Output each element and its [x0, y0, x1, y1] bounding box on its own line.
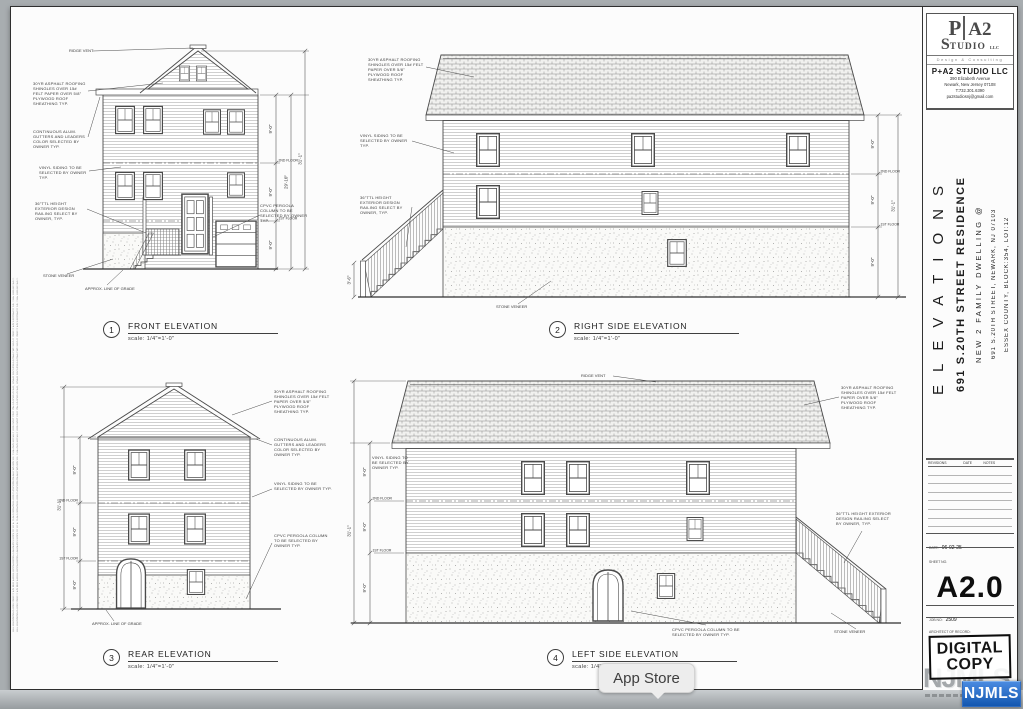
title-block: PA2 STUDIO LLC Design & Consulting P+A2 …	[922, 7, 1017, 691]
note-gutters: CONTINUOUS ALUM. GUTTERS AND LEADERS COL…	[33, 129, 87, 149]
note-gutters: CONTINUOUS ALUM. GUTTERS AND LEADERS COL…	[274, 437, 332, 457]
svg-text:9'-0": 9'-0"	[268, 187, 273, 196]
plate-title: FRONT ELEVATION	[128, 321, 278, 334]
svg-text:9'-0": 9'-0"	[72, 465, 77, 474]
revision-row	[928, 510, 1012, 519]
sheet-number: A2.0	[929, 571, 1011, 605]
plate-scale: scale: 1/4"=1'-0"	[128, 336, 278, 342]
front-elevation-drawing: 9'-0" 9'-0" 9'-0" 29'-10" 31'-1" 2ND FLO…	[33, 37, 333, 305]
svg-text:9'-0": 9'-0"	[870, 257, 875, 266]
svg-text:9'-0": 9'-0"	[268, 124, 273, 133]
firm-logo: PA2 STUDIO LLC Design & Consulting P+A2 …	[926, 13, 1014, 109]
note-railing: 36"TTL HEIGHT EXTERIOR DESIGN RAILING SE…	[360, 195, 410, 215]
note-cpvc: CPVC PERGOLA COLUMN TO BE SELECTED BY OW…	[260, 203, 310, 223]
revisions-col-header: REVISIONS	[928, 461, 963, 465]
svg-text:9'-0": 9'-0"	[870, 139, 875, 148]
edge-copyright-text: ALL DRAWINGS AND WRITTEN MATERIAL APPEAR…	[12, 87, 20, 632]
note-siding: VINYL SIDING TO BE SELECTED BY OWNER TYP…	[274, 481, 332, 491]
app-store-tooltip: App Store	[598, 663, 695, 693]
note-roofing: 30YR ASPHALT ROOFING SHINGLES OVER 15# F…	[368, 57, 424, 82]
date-col-header: DATE	[963, 461, 983, 465]
sheet-title: ELEVATIONS	[930, 116, 947, 452]
svg-text:9'-0": 9'-0"	[362, 467, 367, 476]
revision-row	[928, 501, 1012, 510]
svg-text:1ST FLOOR: 1ST FLOOR	[59, 557, 78, 561]
plate-number: 3	[103, 649, 120, 666]
front-elevation-label: 1 FRONT ELEVATION scale: 1/4"=1'-0"	[103, 321, 278, 342]
right-side-elevation-drawing: 9'-0" 9'-0" 9'-0" 31'-1" 3'-6" 2ND FLOOR…	[346, 49, 921, 313]
svg-text:29'-10": 29'-10"	[284, 175, 289, 189]
bottom-gray-strip	[0, 690, 1023, 709]
svg-text:31'-1": 31'-1"	[347, 525, 352, 537]
project-address: 691 S.20TH STREET, NEWARK, NJ 07103	[991, 116, 997, 452]
svg-text:1ST FLOOR: 1ST FLOOR	[881, 223, 900, 227]
svg-text:2ND FLOOR: 2ND FLOOR	[279, 159, 299, 163]
svg-text:STONE VENEER: STONE VENEER	[834, 629, 865, 634]
project-lot-info: ESSEX COUNTY, BLOCK:354, LOT:12	[1004, 116, 1010, 452]
svg-text:9'-0": 9'-0"	[362, 522, 367, 531]
note-railing: 36"TTL HEIGHT EXTERIOR DESIGN RAILING SE…	[836, 511, 892, 526]
svg-text:STONE VENEER: STONE VENEER	[496, 304, 527, 309]
revision-row	[928, 493, 1012, 502]
njmls-logo-badge: NJMLS	[962, 681, 1021, 707]
revision-row	[928, 467, 1012, 476]
firm-name: P+A2 STUDIO LLC	[927, 64, 1013, 76]
svg-text:APPROX. LINE OF GRADE: APPROX. LINE OF GRADE	[85, 286, 135, 291]
svg-text:1ST FLOOR: 1ST FLOOR	[373, 549, 392, 553]
svg-text:3'-6": 3'-6"	[347, 275, 352, 284]
revision-row	[928, 519, 1012, 528]
drawing-sheet: ALL DRAWINGS AND WRITTEN MATERIAL APPEAR…	[10, 6, 1018, 690]
left-side-elevation-drawing: 9'-0" 9'-0" 9'-0" 31'-1" 2ND FLOOR 1ST F…	[336, 371, 921, 648]
revisions-table: REVISIONS DATE NOTES	[926, 459, 1014, 533]
revision-row	[928, 484, 1012, 493]
svg-text:31'-1": 31'-1"	[298, 153, 303, 165]
note-siding: VINYL SIDING TO BE SELECTED BY OWNER TYP…	[39, 165, 87, 180]
svg-text:RIDGE VENT: RIDGE VENT	[69, 48, 94, 53]
firm-email: pa2studiosnj@gmail.com	[927, 94, 1013, 100]
plate-title: RIGHT SIDE ELEVATION	[574, 321, 739, 334]
job-number-row: JOB NO:2509	[926, 605, 1014, 617]
notes-col-header: NOTES	[983, 461, 1012, 465]
screenshot-root: ALL DRAWINGS AND WRITTEN MATERIAL APPEAR…	[0, 0, 1023, 709]
right-side-elevation-label: 2 RIGHT SIDE ELEVATION scale: 1/4"=1'-0"	[549, 321, 739, 342]
note-roofing: 30YR ASPHALT ROOFING SHINGLES OVER 15# F…	[33, 81, 87, 106]
firm-tagline: Design & Consulting	[927, 57, 1013, 62]
plate-scale: scale: 1/4"=1'-0"	[128, 664, 278, 670]
rear-elevation-drawing: 9'-0" 9'-0" 9'-0" 31'-1" 2ND FLOOR 1ST F…	[36, 375, 336, 649]
plate-scale: scale: 1/4"=1'-0"	[574, 336, 739, 342]
note-siding: VINYL SIDING TO BE SELECTED BY OWNER TYP…	[372, 455, 414, 470]
revision-row	[928, 476, 1012, 485]
svg-text:RIDGE VENT: RIDGE VENT	[581, 373, 606, 378]
note-siding: VINYL SIDING TO BE SELECTED BY OWNER TYP…	[360, 133, 410, 148]
tooltip-tail	[651, 692, 665, 699]
svg-text:APPROX. LINE OF GRADE: APPROX. LINE OF GRADE	[92, 621, 142, 626]
svg-text:2ND FLOOR: 2ND FLOOR	[373, 497, 393, 501]
svg-text:9'-0": 9'-0"	[72, 580, 77, 589]
svg-text:31'-1": 31'-1"	[891, 200, 896, 212]
date-row: DATE:06-02-25	[926, 533, 1014, 547]
svg-text:2ND FLOOR: 2ND FLOOR	[881, 170, 901, 174]
svg-text:9'-0": 9'-0"	[362, 583, 367, 592]
project-identification: ELEVATIONS 691 S.20TH STREET RESIDENCE N…	[926, 109, 1014, 459]
note-roofing: 30YR ASPHALT ROOFING SHINGLES OVER 15# F…	[274, 389, 332, 414]
note-railing: 36"TTL HEIGHT EXTERIOR DESIGN RAILING SE…	[35, 201, 85, 221]
project-title: 691 S.20TH STREET RESIDENCE	[955, 116, 967, 452]
svg-text:9'-0": 9'-0"	[268, 240, 273, 249]
rear-elevation-label: 3 REAR ELEVATION scale: 1/4"=1'-0"	[103, 649, 278, 670]
note-roofing: 30YR ASPHALT ROOFING SHINGLES OVER 15# F…	[841, 385, 899, 410]
plate-number: 2	[549, 321, 566, 338]
svg-text:2ND FLOOR: 2ND FLOOR	[59, 499, 79, 503]
tooltip-label: App Store	[613, 670, 680, 687]
svg-text:9'-0": 9'-0"	[870, 195, 875, 204]
project-subtitle: NEW 2 FAMILY DWELLING @	[974, 116, 983, 452]
sheet-number-box: SHEET NO. A2.0	[926, 547, 1014, 605]
architect-row: ARCHITECT OF RECORD:	[926, 617, 1014, 633]
svg-text:9'-0": 9'-0"	[72, 527, 77, 536]
note-cpvc: CPVC PERGOLA COLUMN TO BE SELECTED BY OW…	[672, 627, 744, 637]
plate-number: 1	[103, 321, 120, 338]
plate-title: LEFT SIDE ELEVATION	[572, 649, 737, 662]
svg-text:STONE VENEER: STONE VENEER	[43, 273, 74, 278]
plate-number: 4	[547, 649, 564, 666]
digital-copy-stamp: DIGITAL COPY	[929, 634, 1012, 680]
plate-title: REAR ELEVATION	[128, 649, 278, 662]
note-cpvc: CPVC PERGOLA COLUMN TO BE SELECTED BY OW…	[274, 533, 332, 548]
